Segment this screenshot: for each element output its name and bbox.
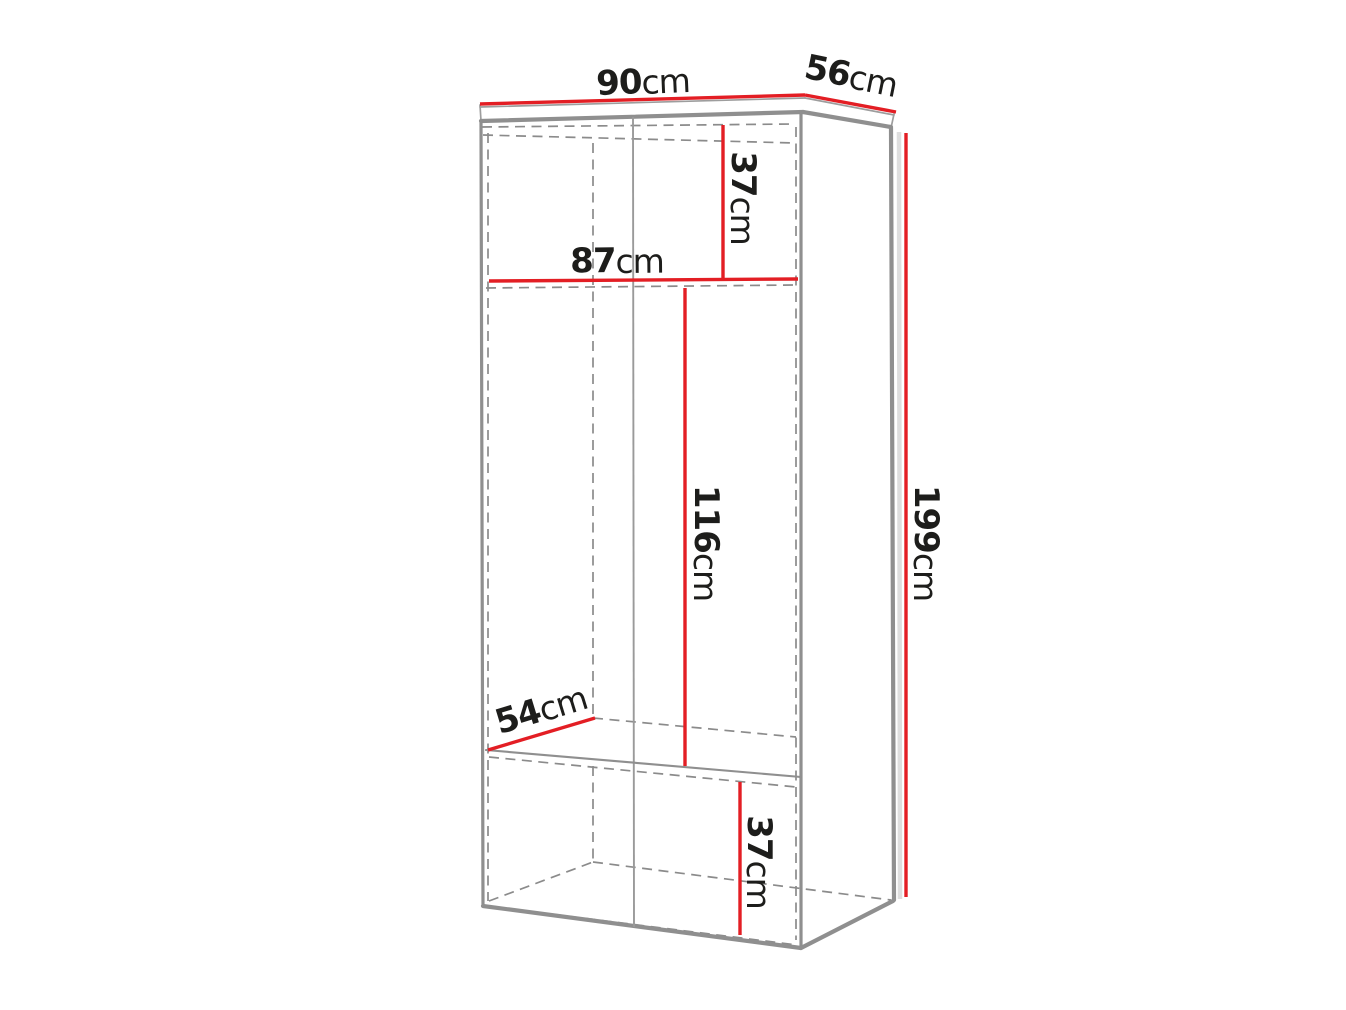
svg-text:37cm: 37cm	[723, 151, 763, 245]
edge-top-front	[481, 112, 803, 121]
edge-top-right	[803, 112, 891, 127]
wardrobe-dimension-diagram: 90cm 56cm 37cm 87cm 116cm 199cm 54cm 37	[0, 0, 1346, 1010]
dimension-label-upper-compartment-height: 37cm	[723, 151, 763, 245]
top-panel-left-corner-edge	[480, 105, 481, 121]
edge-bottom-right	[801, 901, 893, 948]
svg-text:199cm: 199cm	[906, 485, 946, 601]
edge-left-front	[481, 121, 483, 906]
dimension-label-interior-width: 87cm	[570, 241, 664, 282]
hidden-top-panel-back-edge	[483, 135, 796, 143]
dimension-label-total-height: 199cm	[906, 485, 946, 601]
edge-right-back	[891, 128, 894, 900]
diagram-canvas: 90cm 56cm 37cm 87cm 116cm 199cm 54cm 37	[0, 0, 1346, 1010]
svg-text:87cm: 87cm	[570, 241, 664, 282]
hidden-lower-shelf-back-edge	[593, 718, 796, 737]
hidden-upper-shelf-edge	[486, 285, 796, 288]
dimension-labels: 90cm 56cm 37cm 87cm 116cm 199cm 54cm 37	[490, 47, 946, 909]
dimension-label-bottom-compartment-height: 37cm	[739, 815, 779, 909]
svg-text:116cm: 116cm	[686, 485, 726, 601]
dimension-label-top-width: 90cm	[595, 60, 690, 104]
hidden-bottom-left-depth-edge	[489, 862, 593, 901]
dimension-label-middle-compartment-height: 116cm	[686, 485, 726, 601]
hidden-top-panel-front-edge	[482, 124, 794, 127]
svg-text:37cm: 37cm	[739, 815, 779, 909]
right-back-side-sliver	[899, 132, 900, 899]
door-seam-center	[633, 117, 634, 927]
svg-text:90cm: 90cm	[595, 60, 690, 104]
edge-bottom-front	[483, 906, 801, 948]
